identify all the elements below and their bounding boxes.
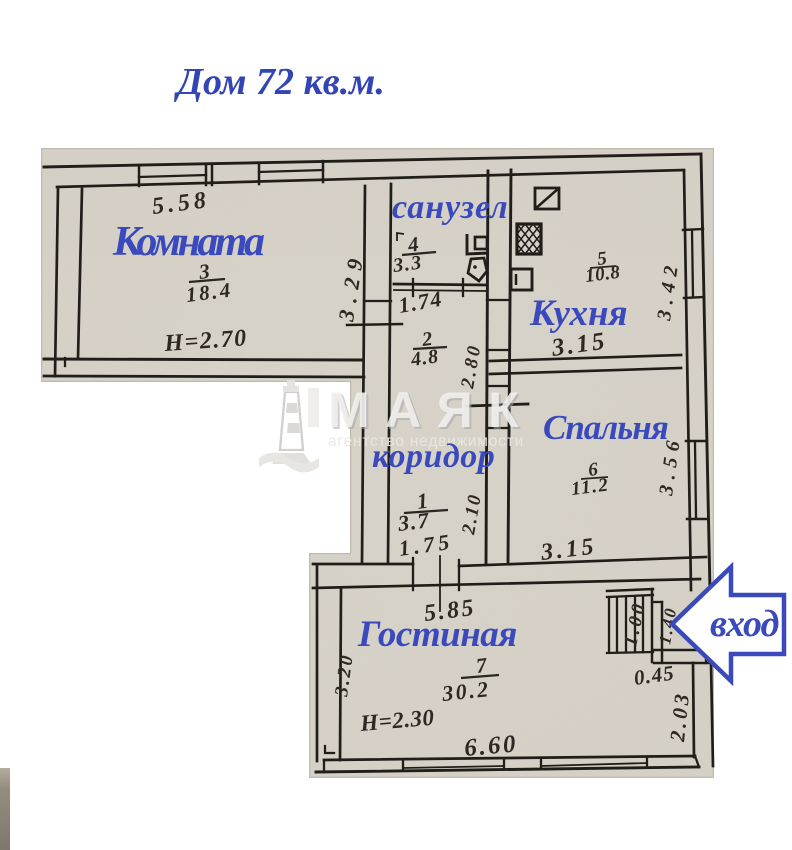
- svg-text:6.60: 6.60: [463, 730, 519, 762]
- svg-text:санузел: санузел: [392, 189, 509, 226]
- svg-text:Спальня: Спальня: [543, 408, 668, 447]
- svg-text:Комната: Комната: [112, 219, 264, 265]
- svg-text:МАЯК: МАЯК: [328, 382, 534, 438]
- svg-text:коридор: коридор: [372, 438, 495, 475]
- svg-text:вход: вход: [710, 603, 779, 645]
- svg-text:Дом 72 кв.м.: Дом 72 кв.м.: [174, 61, 385, 103]
- svg-text:30.2: 30.2: [440, 676, 492, 706]
- svg-text:Кухня: Кухня: [529, 293, 628, 334]
